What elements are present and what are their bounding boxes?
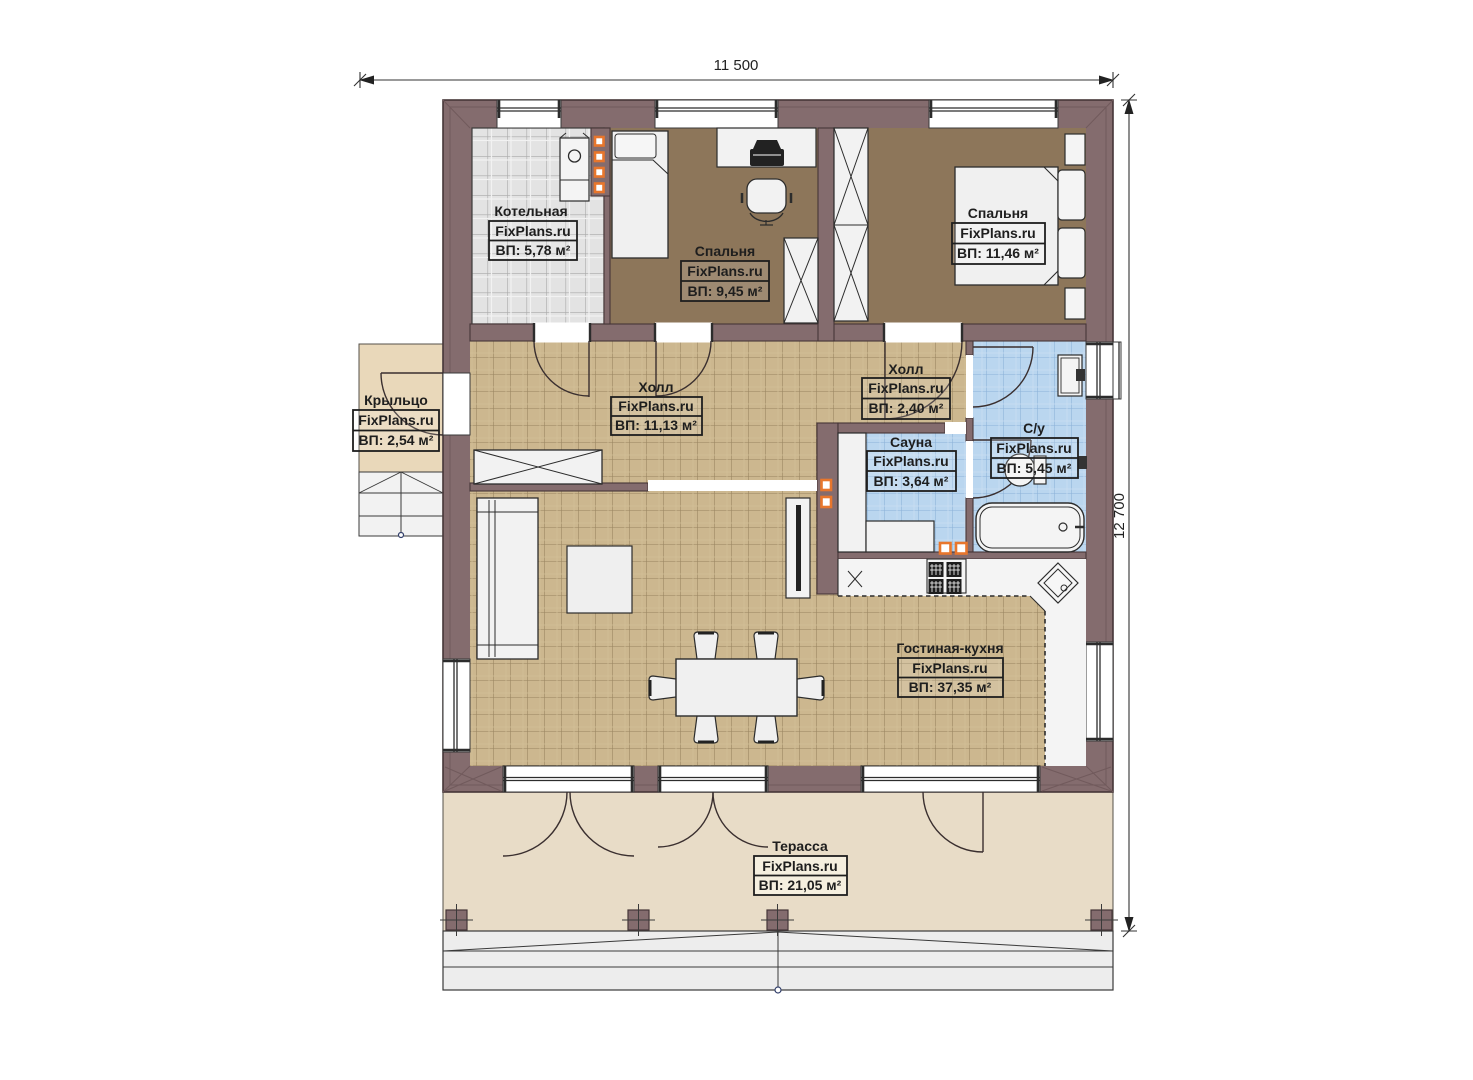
svg-text:FixPlans.ru: FixPlans.ru [912,660,987,676]
svg-text:FixPlans.ru: FixPlans.ru [495,223,570,239]
svg-text:ВП: 2,40 м²: ВП: 2,40 м² [869,400,944,416]
svg-text:Сауна: Сауна [890,434,932,450]
svg-text:С/у: С/у [1023,420,1045,436]
svg-text:FixPlans.ru: FixPlans.ru [358,412,433,428]
svg-text:ВП: 11,46 м²: ВП: 11,46 м² [957,245,1039,261]
svg-text:ВП: 2,54 м²: ВП: 2,54 м² [359,432,434,448]
svg-text:ВП: 37,35 м²: ВП: 37,35 м² [909,679,992,695]
svg-text:ВП: 5,78 м²: ВП: 5,78 м² [496,242,571,258]
svg-text:Холл: Холл [638,379,673,395]
svg-text:Котельная: Котельная [494,203,567,219]
svg-text:FixPlans.ru: FixPlans.ru [687,263,762,279]
svg-text:Спальня: Спальня [968,205,1028,221]
svg-text:FixPlans.ru: FixPlans.ru [996,440,1071,456]
svg-text:FixPlans.ru: FixPlans.ru [868,380,943,396]
svg-text:Терасса: Терасса [772,838,828,854]
svg-text:ВП: 5,45 м²: ВП: 5,45 м² [997,460,1072,476]
svg-text:FixPlans.ru: FixPlans.ru [618,398,693,414]
svg-text:FixPlans.ru: FixPlans.ru [960,225,1035,241]
svg-text:Холл: Холл [888,361,923,377]
svg-text:11 500: 11 500 [714,57,759,74]
svg-text:12 700: 12 700 [1111,493,1128,539]
svg-text:ВП: 3,64 м²: ВП: 3,64 м² [874,473,949,489]
svg-text:FixPlans.ru: FixPlans.ru [762,858,837,874]
svg-text:ВП: 11,13 м²: ВП: 11,13 м² [615,417,697,433]
svg-text:ВП: 9,45 м²: ВП: 9,45 м² [688,283,763,299]
svg-text:Гостиная-кухня: Гостиная-кухня [896,640,1003,656]
svg-text:Крыльцо: Крыльцо [364,392,428,408]
svg-text:Спальня: Спальня [695,243,755,259]
svg-text:ВП: 21,05 м²: ВП: 21,05 м² [759,877,842,893]
svg-text:FixPlans.ru: FixPlans.ru [873,453,948,469]
